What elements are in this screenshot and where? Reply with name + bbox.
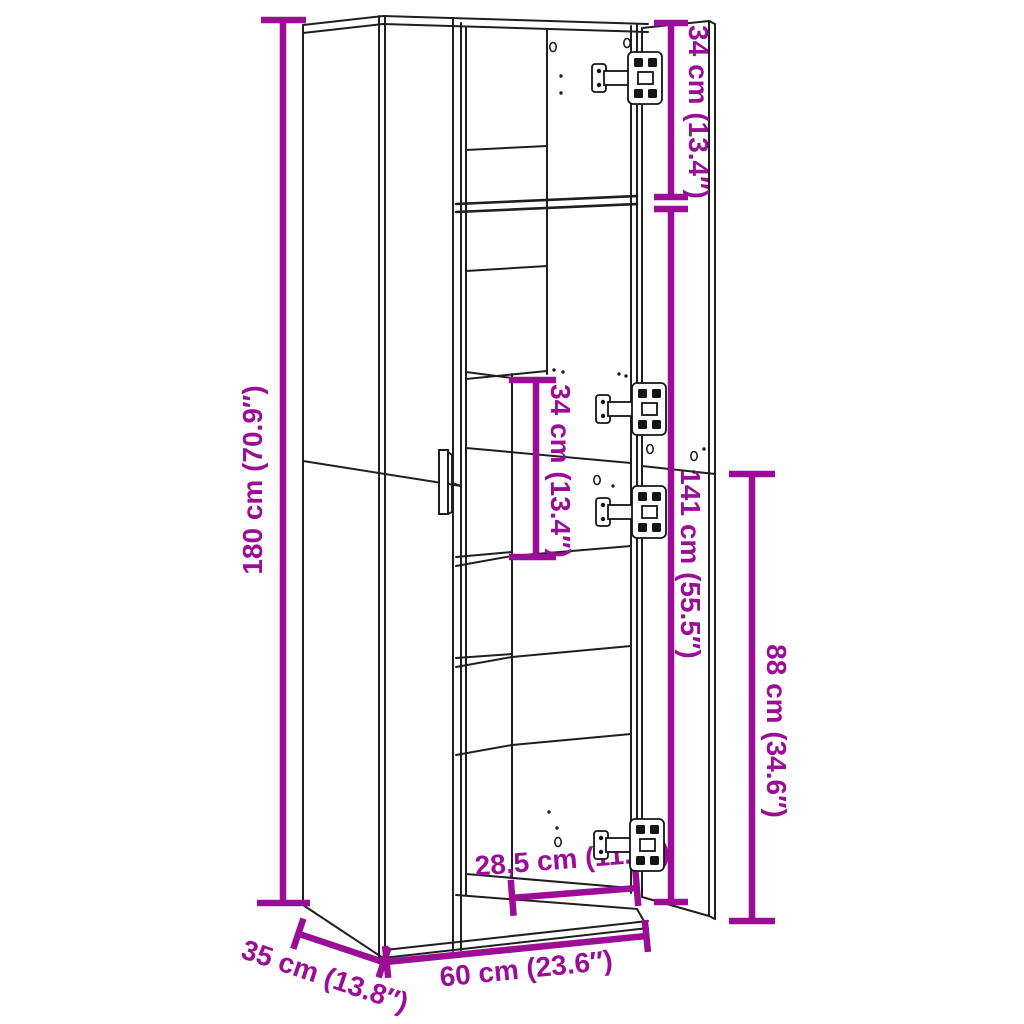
dim-total-height: 180 cm (70.9″) bbox=[237, 20, 310, 903]
top-panel bbox=[303, 16, 648, 33]
dim-door-height-label: 141 cm (55.5″) bbox=[675, 469, 706, 658]
hinge-icon bbox=[592, 52, 662, 104]
dim-lower-section-height: 88 cm (34.6″) bbox=[729, 474, 792, 921]
left-side-panel bbox=[303, 16, 461, 958]
cabinet-dimension-diagram: 180 cm (70.9″) 34 cm (13.4″) 141 cm (55.… bbox=[0, 0, 1024, 1024]
dim-lower-section-height-label: 88 cm (34.6″) bbox=[761, 644, 792, 818]
dim-inner-compartment-height: 34 cm (13.4″) bbox=[509, 380, 576, 558]
dim-door-height: 141 cm (55.5″) bbox=[654, 209, 706, 902]
dim-top-compartment-height-label: 34 cm (13.4″) bbox=[683, 25, 714, 199]
door-handle bbox=[439, 450, 461, 514]
dim-inner-compartment-height-label: 34 cm (13.4″) bbox=[545, 384, 576, 558]
cabinet-line-art bbox=[303, 16, 715, 958]
dim-total-width: 60 cm (23.6″) bbox=[385, 920, 648, 993]
dim-top-compartment-height: 34 cm (13.4″) bbox=[654, 23, 714, 199]
dim-total-height-label: 180 cm (70.9″) bbox=[237, 385, 268, 574]
